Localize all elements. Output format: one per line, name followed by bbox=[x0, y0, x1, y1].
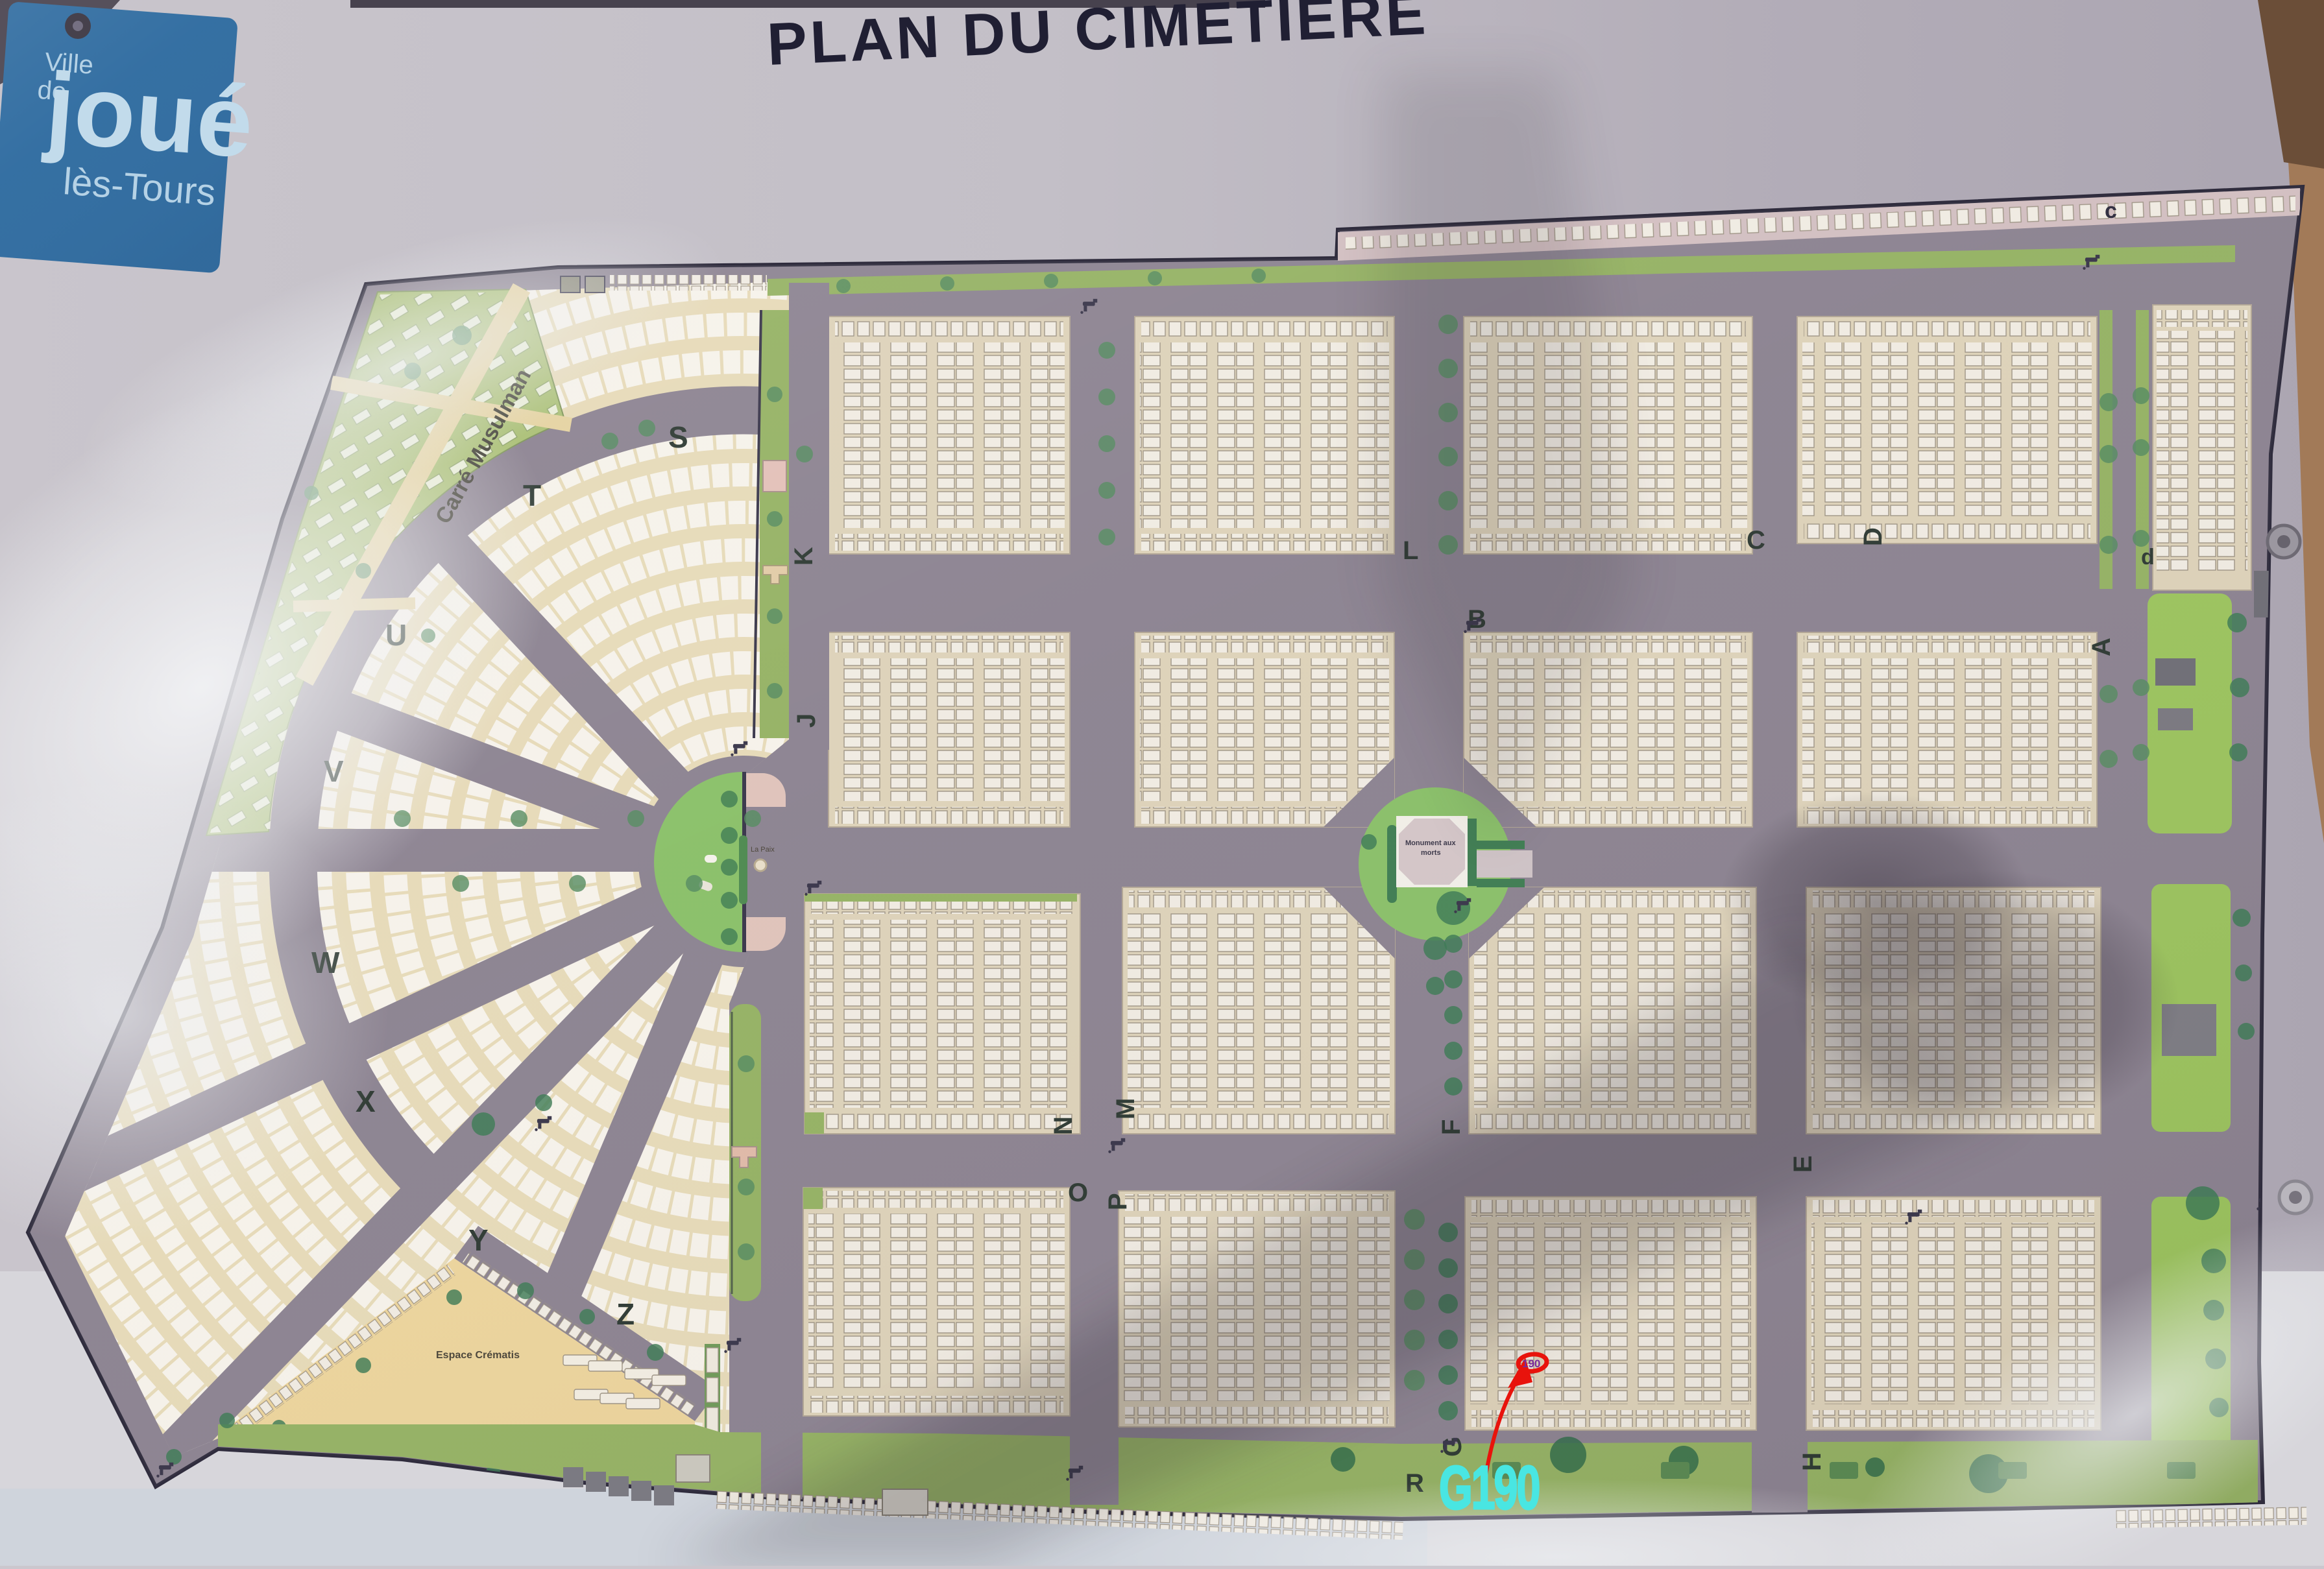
svg-text:G190: G190 bbox=[1439, 1454, 1539, 1522]
svg-text:190: 190 bbox=[1522, 1358, 1540, 1370]
svg-text:joué: joué bbox=[40, 51, 257, 179]
